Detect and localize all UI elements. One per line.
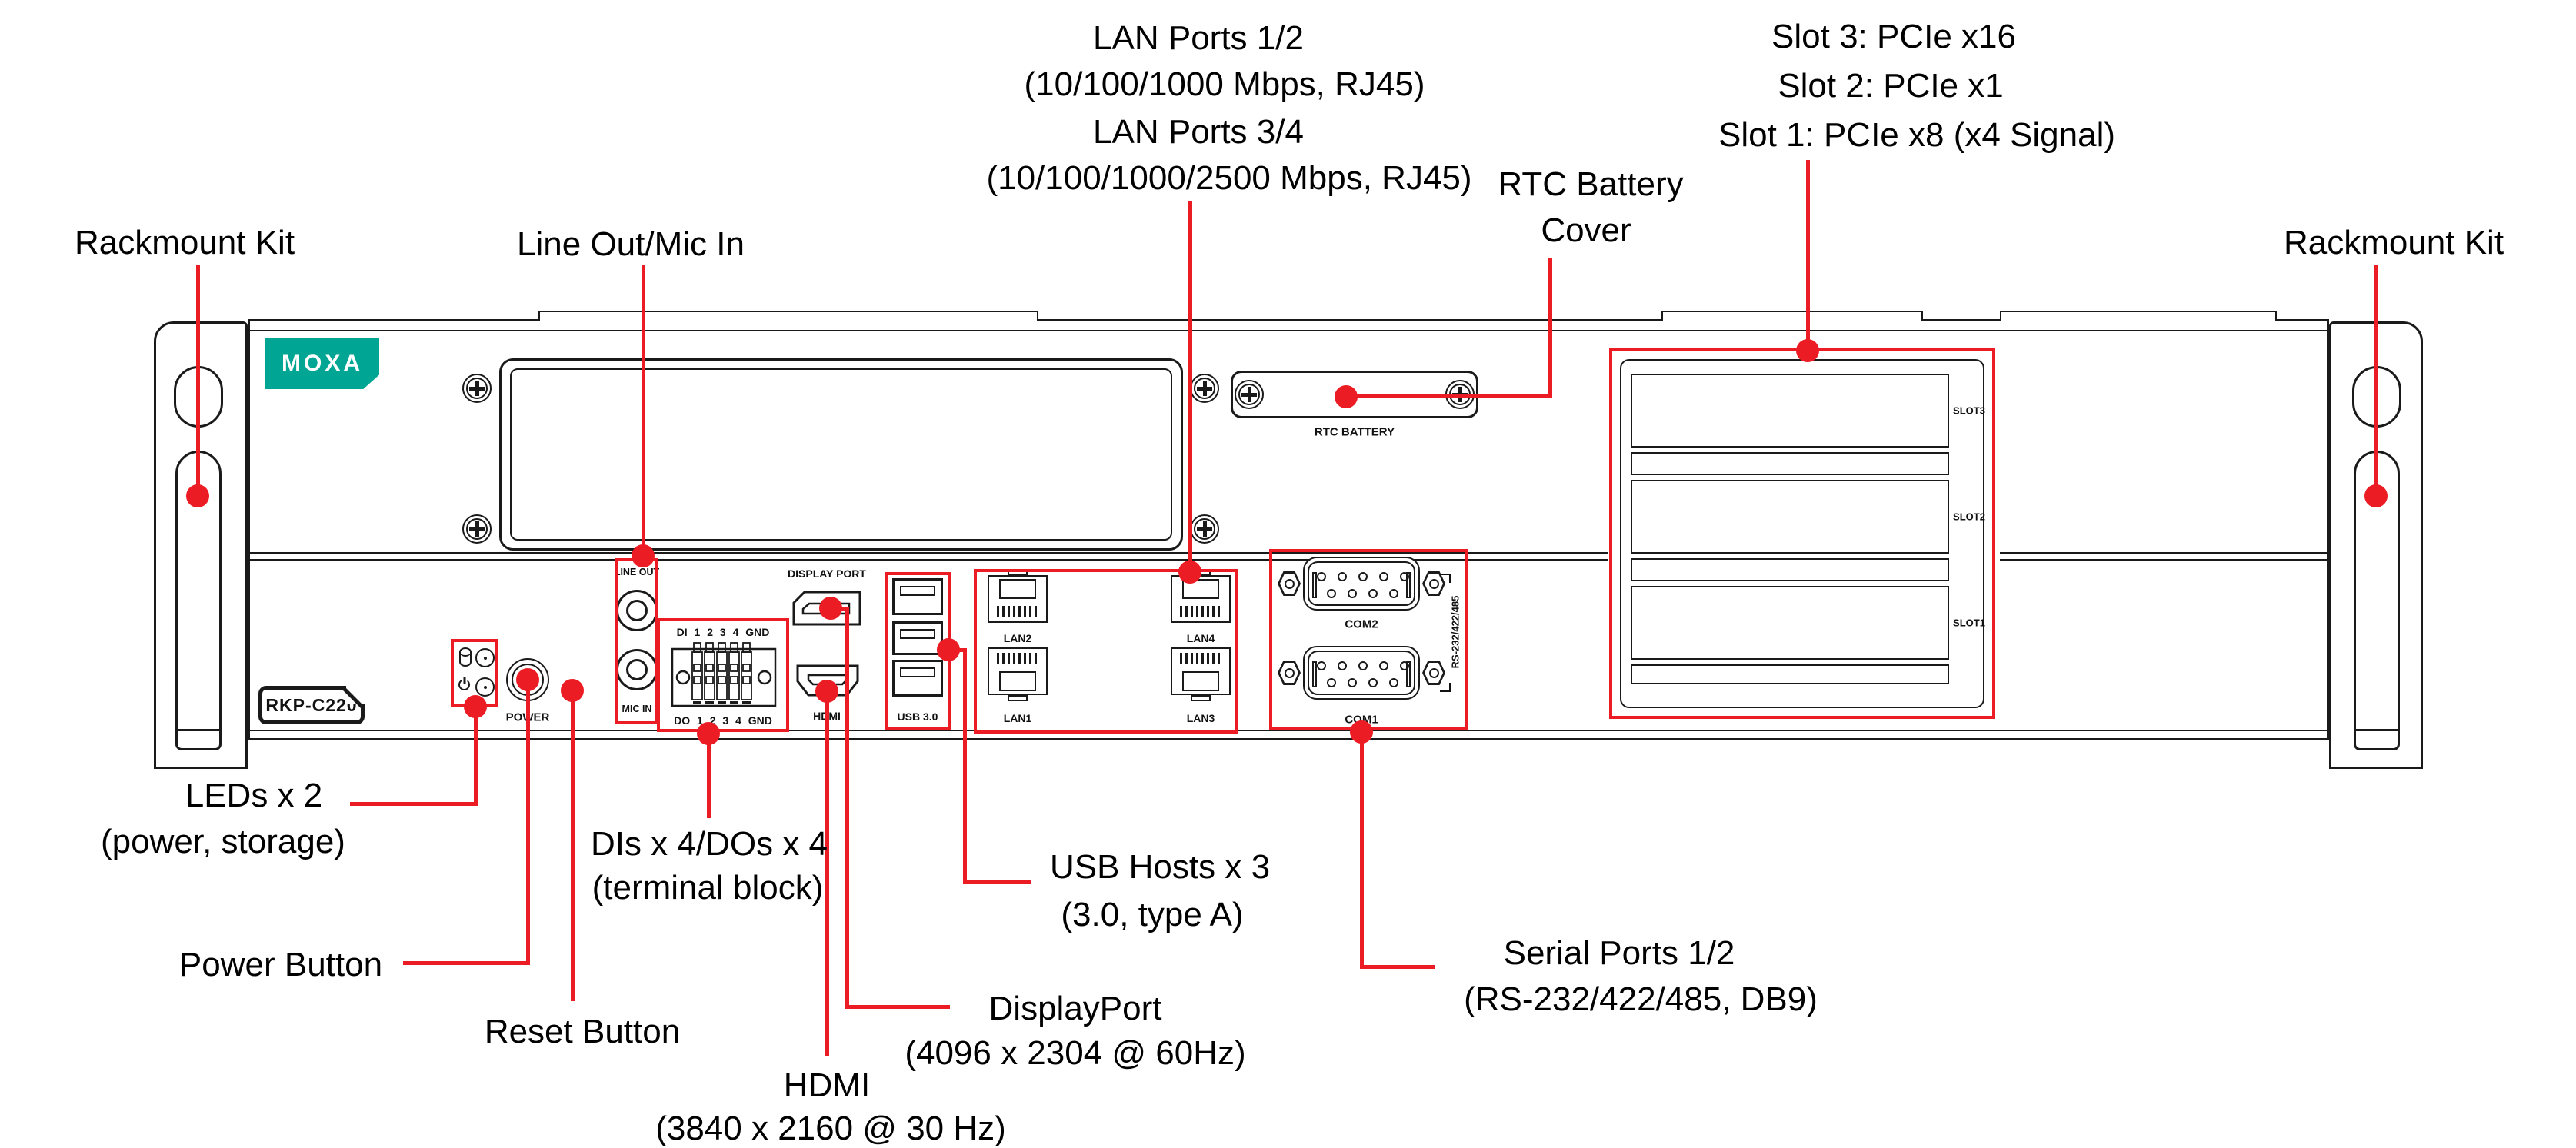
callout-line: [1346, 394, 1551, 398]
callout-displayport-title: DisplayPort: [989, 990, 1162, 1028]
callout-rtc-title: RTC Battery: [1498, 165, 1683, 204]
chassis-top-tab: [538, 311, 1038, 321]
moxa-logo-text: MOXA: [282, 351, 363, 377]
screw-icon: [462, 374, 492, 403]
callout-slot2: Slot 2: PCIe x1: [1778, 67, 2003, 105]
model-badge-text: RKP-C220: [265, 695, 357, 716]
chassis-mid-line: [2000, 559, 2328, 561]
callout-line: [845, 1005, 950, 1009]
callout-line: [1360, 965, 1435, 969]
callout-line: [1188, 201, 1192, 572]
callout-dot: [464, 695, 487, 718]
callout-line: [963, 648, 967, 884]
callout-dot: [516, 668, 539, 691]
callout-rackmount-right: Rackmount Kit: [2284, 224, 2504, 262]
callout-dot: [697, 722, 720, 745]
chassis-top-inner-line: [250, 330, 2327, 331]
callout-line: [526, 689, 530, 965]
chassis-top-tab: [1661, 311, 1923, 321]
callout-line: [474, 707, 478, 806]
pcie-slots-highlight: [1609, 348, 1995, 719]
callout-line: [403, 961, 529, 965]
callout-line: [1806, 160, 1810, 350]
screw-icon: [462, 514, 492, 544]
callout-serial-sub: (RS-232/422/485, DB9): [1464, 980, 1818, 1019]
callout-line: [1548, 258, 1552, 398]
callout-dido-sub: (terminal block): [592, 869, 824, 907]
ear-slot-crossbar: [2356, 729, 2398, 731]
callout-dot: [937, 638, 960, 661]
callout-line: [2374, 265, 2378, 496]
callout-line: [571, 700, 575, 1001]
callout-dot: [1335, 385, 1358, 408]
callout-line: [350, 802, 478, 806]
callout-line: [825, 700, 829, 1056]
callout-dido-title: DIs x 4/DOs x 4: [591, 825, 828, 863]
callout-line: [642, 265, 645, 556]
callout-dot: [561, 679, 584, 702]
callout-dot: [186, 484, 209, 507]
callout-lan34-title: LAN Ports 3/4: [1093, 113, 1304, 151]
callout-line: [1360, 732, 1364, 969]
model-badge: RKP-C220: [258, 686, 365, 724]
callout-hdmi-sub: (3840 x 2160 @ 30 Hz): [655, 1110, 1006, 1148]
callout-dot: [2364, 484, 2388, 507]
chassis-top-tab: [2000, 311, 2277, 321]
com-highlight: [1269, 549, 1468, 730]
callout-usb-sub: (3.0, type A): [1061, 896, 1243, 934]
panel-diagram: MOXA RKP-C220 RTC BATTERY POWER LINE OUT…: [0, 0, 2576, 1148]
audio-highlight: [615, 558, 658, 724]
callout-lan34-sub: (10/100/1000/2500 Mbps, RJ45): [986, 159, 1471, 198]
screw-icon: [1190, 514, 1219, 544]
rtc-battery-silk: RTC BATTERY: [1315, 426, 1395, 439]
callout-leds-title: LEDs x 2: [185, 777, 323, 815]
callout-slot1: Slot 1: PCIe x8 (x4 Signal): [1718, 116, 2115, 155]
chassis-mid-line: [2000, 552, 2328, 554]
callout-dot: [1796, 339, 1819, 362]
callout-usb-title: USB Hosts x 3: [1050, 848, 1270, 887]
screw-icon: [1235, 380, 1264, 409]
callout-dot: [815, 680, 838, 703]
screw-icon: [1190, 374, 1219, 403]
callout-power-button: Power Button: [179, 946, 382, 984]
callout-dot: [1178, 561, 1201, 584]
callout-dot: [819, 597, 842, 620]
callout-slot3: Slot 3: PCIe x16: [1771, 18, 2016, 56]
callout-leds-sub: (power, storage): [101, 823, 345, 861]
blank-panel-inner: [510, 368, 1172, 541]
callout-line: [196, 265, 200, 496]
callout-reset-button: Reset Button: [485, 1013, 680, 1051]
callout-lan12-sub: (10/100/1000 Mbps, RJ45): [1025, 65, 1425, 104]
callout-hdmi-title: HDMI: [784, 1066, 870, 1105]
moxa-logo: MOXA: [265, 338, 379, 389]
callout-lan12-title: LAN Ports 1/2: [1093, 19, 1304, 58]
callout-line-out-mic-in: Line Out/Mic In: [517, 225, 745, 264]
callout-rackmount-left: Rackmount Kit: [75, 224, 295, 262]
ear-slot-crossbar: [178, 729, 219, 731]
lan-highlight: [974, 569, 1238, 734]
dido-highlight: [657, 618, 789, 732]
callout-serial-title: Serial Ports 1/2: [1504, 934, 1735, 973]
callout-line: [845, 607, 849, 1009]
callout-displayport-sub: (4096 x 2304 @ 60Hz): [905, 1034, 1245, 1073]
callout-dot: [1350, 720, 1373, 744]
callout-line: [963, 880, 1031, 884]
callout-line: [707, 735, 711, 818]
callout-rtc-sub: Cover: [1541, 211, 1631, 250]
display-port-silk: DISPLAY PORT: [788, 567, 866, 580]
callout-dot: [632, 544, 655, 567]
